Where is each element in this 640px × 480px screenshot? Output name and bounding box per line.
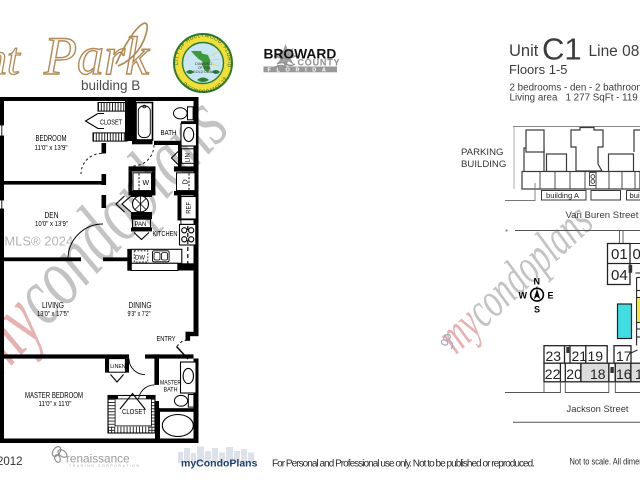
svg-text:DEN: DEN [45, 211, 59, 220]
svg-text:COUNTY: COUNTY [298, 57, 341, 67]
svg-text:Unit: Unit [509, 42, 539, 60]
svg-text:1 277 SqFt - 119 SqM: 1 277 SqFt - 119 SqM [566, 93, 640, 104]
svg-text:PAN: PAN [135, 222, 147, 228]
svg-text:Not to scale. All dimensions: Not to scale. All dimensions are approxi… [570, 456, 640, 467]
svg-text:CLOSET: CLOSET [122, 407, 146, 416]
svg-text:E: E [548, 291, 554, 301]
svg-text:GOLD COAST: GOLD COAST [193, 70, 217, 74]
svg-text:04: 04 [611, 267, 628, 284]
svg-text:BUILDING: BUILDING [461, 159, 506, 170]
svg-text:11'0" x 11'0": 11'0" x 11'0" [39, 401, 72, 408]
svg-text:BATH: BATH [164, 387, 178, 394]
svg-text:11'0" x 13'9": 11'0" x 13'9" [35, 145, 68, 152]
svg-text:MASTER BEDROOM: MASTER BEDROOM [25, 391, 83, 400]
svg-text:18: 18 [590, 366, 606, 382]
svg-text:21: 21 [572, 348, 588, 364]
svg-text:23: 23 [546, 348, 562, 364]
svg-text:ENTRY: ENTRY [157, 334, 176, 343]
svg-text:Floors 1-5: Floors 1-5 [509, 62, 568, 77]
svg-text:myCondoPlans: myCondoPlans [181, 458, 258, 470]
svg-text:W: W [143, 180, 150, 187]
svg-text:BATH: BATH [161, 128, 177, 137]
svg-text:02: 02 [633, 246, 640, 263]
svg-text:mi MLS® 2024: mi MLS® 2024 [0, 234, 73, 249]
svg-text:Line 08: Line 08 [589, 43, 640, 60]
svg-text:building B: building B [630, 191, 640, 200]
svg-text:D: D [183, 179, 190, 184]
svg-text:LIVING: LIVING [42, 301, 64, 310]
svg-text:MASTER: MASTER [160, 380, 181, 387]
svg-text:17: 17 [616, 348, 632, 364]
svg-text:FLORIDA: FLORIDA [268, 68, 332, 74]
svg-text:01: 01 [611, 246, 628, 263]
svg-text:building B: building B [81, 78, 140, 93]
svg-text:KITCHEN: KITCHEN [153, 229, 178, 238]
svg-text:N: N [534, 277, 541, 287]
svg-text:W: W [519, 291, 528, 301]
svg-text:22: 22 [545, 366, 561, 382]
svg-text:1: 1 [635, 366, 640, 382]
svg-text:16: 16 [616, 366, 632, 382]
svg-text:LINEN: LINEN [110, 364, 126, 370]
svg-text:LIN: LIN [186, 153, 192, 162]
svg-text:19: 19 [588, 348, 604, 364]
svg-text:20: 20 [566, 366, 582, 382]
svg-text:REF: REF [186, 201, 192, 213]
svg-text:9'3" x 7'2": 9'3" x 7'2" [128, 311, 151, 318]
svg-text:For Personal and Professional: For Personal and Professional use only. … [272, 459, 535, 470]
svg-text:BEDROOM: BEDROOM [36, 134, 67, 143]
svg-text:PARKING: PARKING [461, 147, 503, 158]
svg-text:Living area: Living area [510, 93, 558, 104]
svg-text:DINING: DINING [129, 301, 152, 310]
svg-text:nt: nt [0, 33, 21, 84]
svg-text:TRADING CORPORATION: TRADING CORPORATION [69, 464, 141, 468]
svg-text:S: S [534, 305, 540, 315]
svg-text:CLOSET: CLOSET [100, 120, 123, 127]
svg-text:13'0" x 17'5": 13'0" x 17'5" [37, 311, 69, 318]
svg-text:Jackson Street: Jackson Street [567, 403, 629, 414]
svg-text:building A: building A [546, 191, 580, 200]
svg-text:10'0" x 13'9": 10'0" x 13'9" [35, 221, 68, 228]
svg-text:2012: 2012 [0, 456, 23, 468]
svg-text:DW: DW [135, 256, 145, 262]
svg-text:Van Buren Street: Van Buren Street [566, 210, 639, 221]
